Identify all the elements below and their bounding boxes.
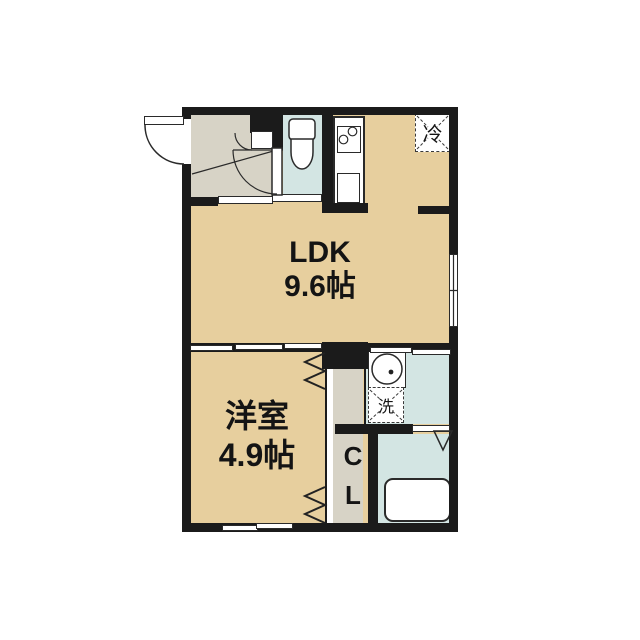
washer-corner-marks — [370, 390, 402, 420]
closet-label: C — [339, 437, 367, 476]
door-swing-arc-icon — [145, 125, 184, 164]
toilet-icon — [291, 139, 313, 169]
stove-burners-icon — [348, 127, 357, 136]
western-room-label-block: 洋室 4.9帖 — [177, 397, 337, 475]
floorplan: 冷 洗 — [0, 0, 640, 640]
stove-burners-icon — [339, 135, 348, 144]
door-swing-arc-icon — [235, 133, 252, 150]
western-room-size-label: 4.9帖 — [177, 436, 337, 475]
closet-label: L — [339, 476, 367, 515]
closet-label-block: C L — [339, 437, 367, 515]
door-swing-triangle-icon — [434, 431, 452, 450]
refrigerator-corner-marks — [417, 116, 448, 149]
toilet-icon — [289, 119, 315, 140]
ldk-size-label: 9.6帖 — [220, 270, 420, 304]
sliding-window-icon — [449, 255, 458, 326]
linework-overlay — [0, 0, 640, 640]
toilet-door-leaf — [272, 148, 282, 195]
western-room-label: 洋室 — [177, 397, 337, 436]
folding-door-zigzag-icon — [305, 353, 325, 389]
folding-door-zigzag-icon — [305, 487, 325, 523]
ldk-label: LDK — [220, 236, 420, 270]
washbasin-icon — [389, 370, 394, 375]
washbasin-icon — [372, 354, 402, 384]
ldk-label-block: LDK 9.6帖 — [220, 236, 420, 303]
